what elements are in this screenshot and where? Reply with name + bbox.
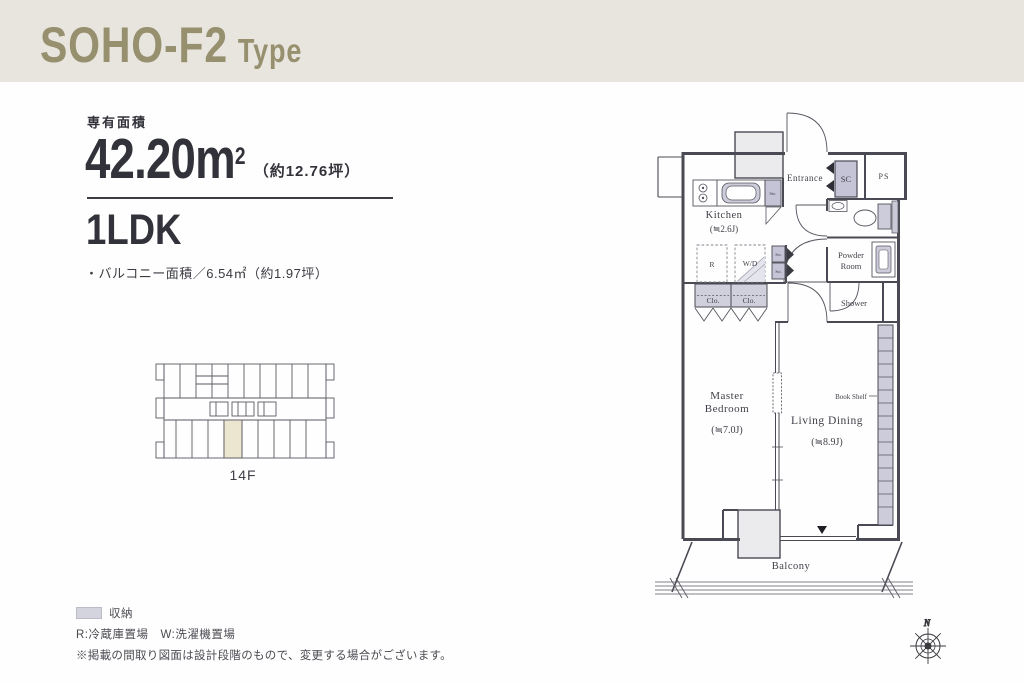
layout-type: 1LDK [86, 209, 181, 252]
powder-door [784, 239, 827, 282]
area-tsubo-note: （約12.76坪） [254, 160, 361, 181]
plan-type-title: SOHO-F2 [40, 16, 228, 74]
balcony-railing [655, 582, 913, 594]
duct-panel [892, 201, 898, 233]
legend-abbreviations: R:冷蔵庫置場 W:洗濯機置場 [76, 626, 452, 642]
legend-disclaimer: ※掲載の間取り図面は設計段階のもので、変更する場合がございます。 [76, 647, 452, 663]
floor-plan: Sto. SC R W/D Sto. Sto. [650, 95, 950, 675]
divider-line [87, 197, 393, 199]
living-window [780, 537, 856, 541]
closets: Clo. Clo. [695, 284, 767, 321]
railing-joints [670, 578, 900, 598]
area-exponent: 2 [235, 143, 246, 170]
storage-swatch-icon [76, 607, 102, 619]
legend-storage-row: 収納 [76, 605, 452, 621]
powder-room-label: Room [841, 261, 862, 271]
living-door [788, 283, 827, 322]
building-key-plan: 14F [150, 358, 340, 490]
kitchen-size-label: (≒2.6J) [710, 224, 738, 234]
balcony-area-note: ・バルコニー面積／6.54㎡（約1.97坪） [85, 263, 328, 282]
folding-door-icon [695, 308, 767, 321]
toilet-icon [854, 210, 876, 226]
hall-storage: Sto. Sto. [772, 246, 794, 279]
bookshelf-label: Book Shelf [835, 393, 867, 401]
window-marker-icon [817, 526, 827, 534]
entrance-label: Entrance [787, 173, 823, 183]
structural-column-bottom [738, 510, 780, 558]
ps-label: PS [879, 172, 890, 181]
sliding-partition [772, 322, 783, 510]
vanity-icon [872, 242, 895, 277]
shoe-closet: SC [826, 161, 857, 197]
powder-room-label: Powder [838, 250, 864, 260]
area-number: 42.20m2 [85, 131, 246, 188]
sc-arrow-icon [826, 180, 834, 192]
sto-label: Sto. [775, 269, 781, 274]
master-bedroom-size: (≒7.0J) [711, 425, 742, 436]
toilet-fixtures [829, 201, 898, 234]
closet-label: Clo. [743, 296, 756, 305]
sc-arrow-icon [826, 162, 834, 174]
master-bedroom-label: Master [710, 390, 744, 402]
washer-label: W/D [743, 259, 758, 268]
toilet-door [796, 205, 827, 236]
appliance-spaces: R W/D [697, 245, 765, 282]
living-dining-size: (≒8.9J) [811, 437, 842, 448]
storage-label: 収納 [109, 605, 133, 621]
refrigerator-label: R [709, 260, 714, 269]
storage-door [766, 207, 781, 224]
page-title: SOHO-F2 Type [40, 16, 302, 74]
stove-icon [693, 180, 717, 206]
plan-type-title-suffix: Type [238, 32, 302, 70]
sc-label: SC [841, 174, 852, 184]
sto-arrow-icon [787, 248, 794, 261]
book-shelf [878, 325, 893, 525]
balcony-label: Balcony [772, 561, 811, 572]
legend: 収納 R:冷蔵庫置場 W:洗濯機置場 ※掲載の間取り図面は設計段階のもので、変更… [76, 605, 452, 663]
exclusive-area-value: 42.20m2 （約12.76坪） [85, 131, 360, 188]
kitchen-storage-label: Sto. [769, 191, 776, 196]
closet-label: Clo. [707, 296, 720, 305]
shower-label: Shower [841, 298, 867, 308]
building-outline [156, 364, 334, 458]
north-label: N [923, 618, 931, 628]
highlighted-unit [224, 420, 242, 458]
sto-label: Sto. [775, 252, 781, 257]
living-dining-label: Living Dining [791, 415, 863, 427]
kitchen-label: Kitchen [706, 210, 743, 221]
sto-arrow-icon [787, 264, 794, 277]
header-band: SOHO-F2 Type [0, 0, 1024, 82]
master-bedroom-label: Bedroom [705, 403, 749, 415]
entrance-door [787, 113, 827, 152]
compass-icon: N [910, 618, 946, 664]
floor-label: 14F [229, 467, 256, 483]
